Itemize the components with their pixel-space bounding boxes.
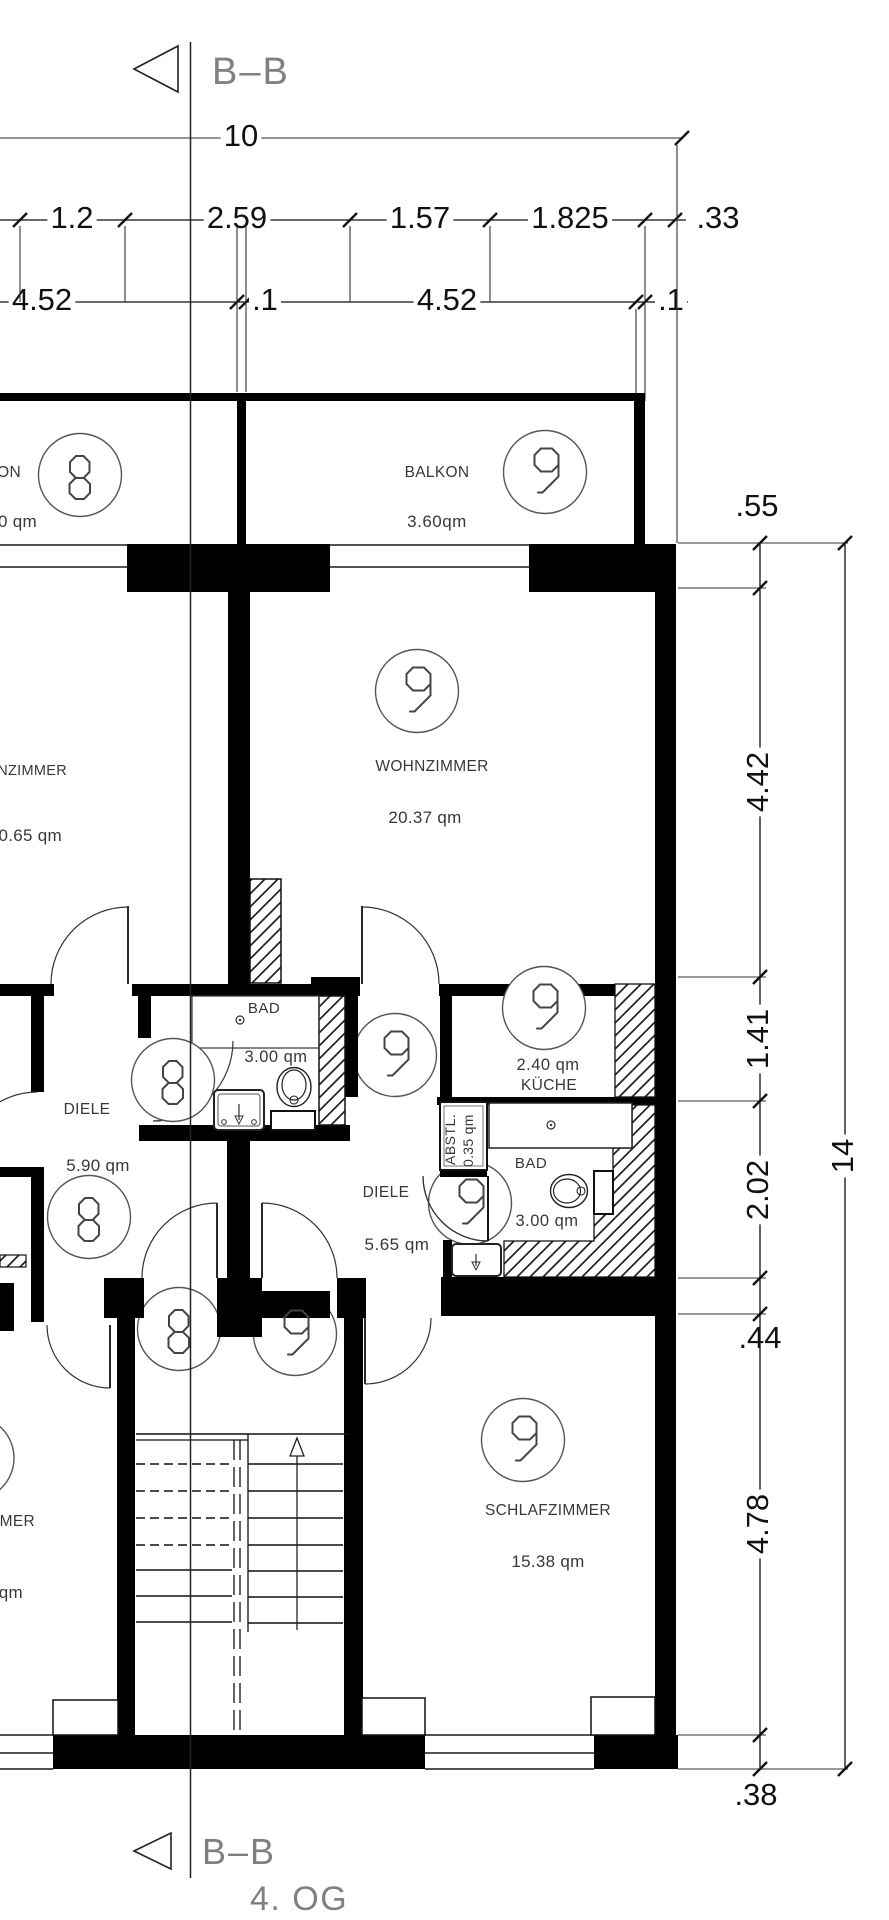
svg-text:3.00 qm: 3.00 qm — [515, 1212, 578, 1230]
svg-text:ABSTL.: ABSTL. — [442, 1114, 458, 1165]
svg-text:2.40 qm: 2.40 qm — [516, 1056, 579, 1074]
svg-text:20.65 qm: 20.65 qm — [0, 826, 62, 845]
svg-text:4.42: 4.42 — [740, 752, 775, 812]
svg-text:4.78: 4.78 — [740, 1494, 775, 1554]
svg-text:DIELE: DIELE — [363, 1184, 410, 1201]
svg-text:WOHNZIMMER: WOHNZIMMER — [0, 763, 67, 779]
svg-text:SCHLAFZIMMER: SCHLAFZIMMER — [485, 1502, 611, 1519]
svg-text:.38: .38 — [734, 1777, 777, 1812]
svg-text:0.35 qm: 0.35 qm — [460, 1114, 476, 1167]
svg-text:.55: .55 — [735, 488, 778, 523]
svg-text:SCHLAFZIMMER: SCHLAFZIMMER — [0, 1513, 35, 1530]
svg-text:KÜCHE: KÜCHE — [521, 1076, 577, 1094]
svg-text:4. OG: 4. OG — [250, 1880, 348, 1918]
svg-text:4.52: 4.52 — [417, 282, 477, 317]
svg-text:1.41: 1.41 — [740, 1009, 775, 1069]
svg-text:15.38 qm: 15.38 qm — [0, 1583, 23, 1602]
svg-text:BALKON: BALKON — [405, 464, 470, 481]
svg-text:5.90 qm: 5.90 qm — [66, 1156, 130, 1175]
svg-text:10: 10 — [224, 118, 258, 153]
svg-text:20.37 qm: 20.37 qm — [388, 808, 461, 827]
svg-text:14: 14 — [825, 1139, 860, 1173]
svg-text:.44: .44 — [738, 1320, 781, 1355]
svg-text:.1: .1 — [658, 282, 684, 317]
svg-text:1.2: 1.2 — [50, 200, 93, 235]
svg-text:4.52: 4.52 — [12, 282, 72, 317]
svg-text:15.38 qm: 15.38 qm — [511, 1552, 584, 1571]
svg-text:B–B: B–B — [212, 51, 290, 93]
svg-text:DIELE: DIELE — [64, 1101, 111, 1118]
svg-text:2.02: 2.02 — [740, 1160, 775, 1220]
svg-text:BAD: BAD — [248, 1000, 280, 1017]
svg-text:B–B: B–B — [202, 1831, 276, 1872]
svg-text:WOHNZIMMER: WOHNZIMMER — [375, 758, 488, 775]
svg-text:3.60qm: 3.60qm — [407, 512, 467, 531]
svg-text:1.825: 1.825 — [531, 200, 609, 235]
svg-text:3.60 qm: 3.60 qm — [0, 512, 37, 531]
svg-text:BAD: BAD — [515, 1155, 547, 1172]
svg-text:.1: .1 — [252, 282, 278, 317]
svg-text:BALKON: BALKON — [0, 464, 21, 481]
svg-text:.33: .33 — [696, 200, 739, 235]
svg-text:3.00 qm: 3.00 qm — [244, 1048, 307, 1066]
svg-text:1.57: 1.57 — [390, 200, 450, 235]
svg-text:5.65 qm: 5.65 qm — [365, 1235, 430, 1254]
